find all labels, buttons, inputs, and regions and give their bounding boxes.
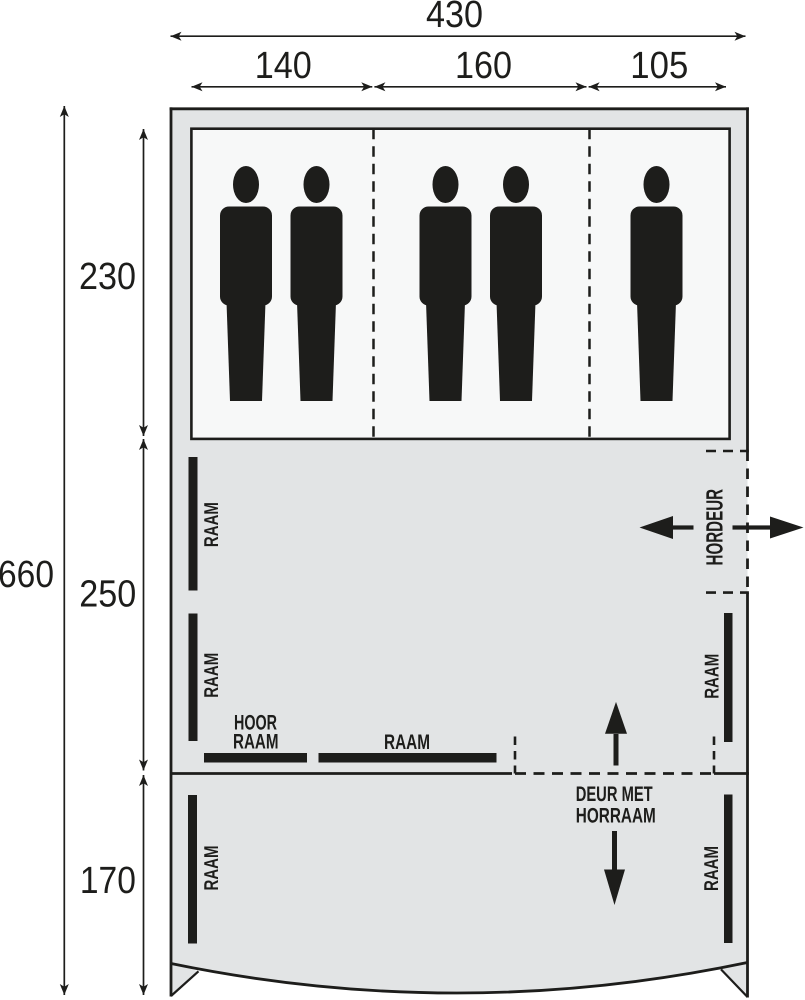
svg-text:660: 660 bbox=[0, 554, 54, 596]
svg-text:160: 160 bbox=[455, 45, 512, 87]
svg-text:230: 230 bbox=[79, 256, 136, 298]
svg-text:RAAM: RAAM bbox=[233, 731, 279, 754]
svg-text:105: 105 bbox=[630, 45, 688, 87]
svg-text:250: 250 bbox=[79, 574, 136, 616]
svg-text:430: 430 bbox=[426, 0, 483, 36]
svg-text:140: 140 bbox=[255, 45, 312, 87]
svg-text:RAAM: RAAM bbox=[384, 731, 430, 754]
svg-text:RAAM: RAAM bbox=[701, 846, 723, 891]
svg-text:170: 170 bbox=[80, 860, 136, 902]
svg-text:RAAM: RAAM bbox=[701, 654, 723, 699]
svg-text:DEUR MET: DEUR MET bbox=[576, 783, 653, 806]
svg-text:RAAM: RAAM bbox=[201, 653, 223, 698]
svg-text:HORDEUR: HORDEUR bbox=[701, 489, 727, 566]
svg-text:RAAM: RAAM bbox=[201, 846, 223, 891]
svg-text:HORRAAM: HORRAAM bbox=[576, 805, 656, 828]
svg-text:RAAM: RAAM bbox=[201, 502, 223, 547]
